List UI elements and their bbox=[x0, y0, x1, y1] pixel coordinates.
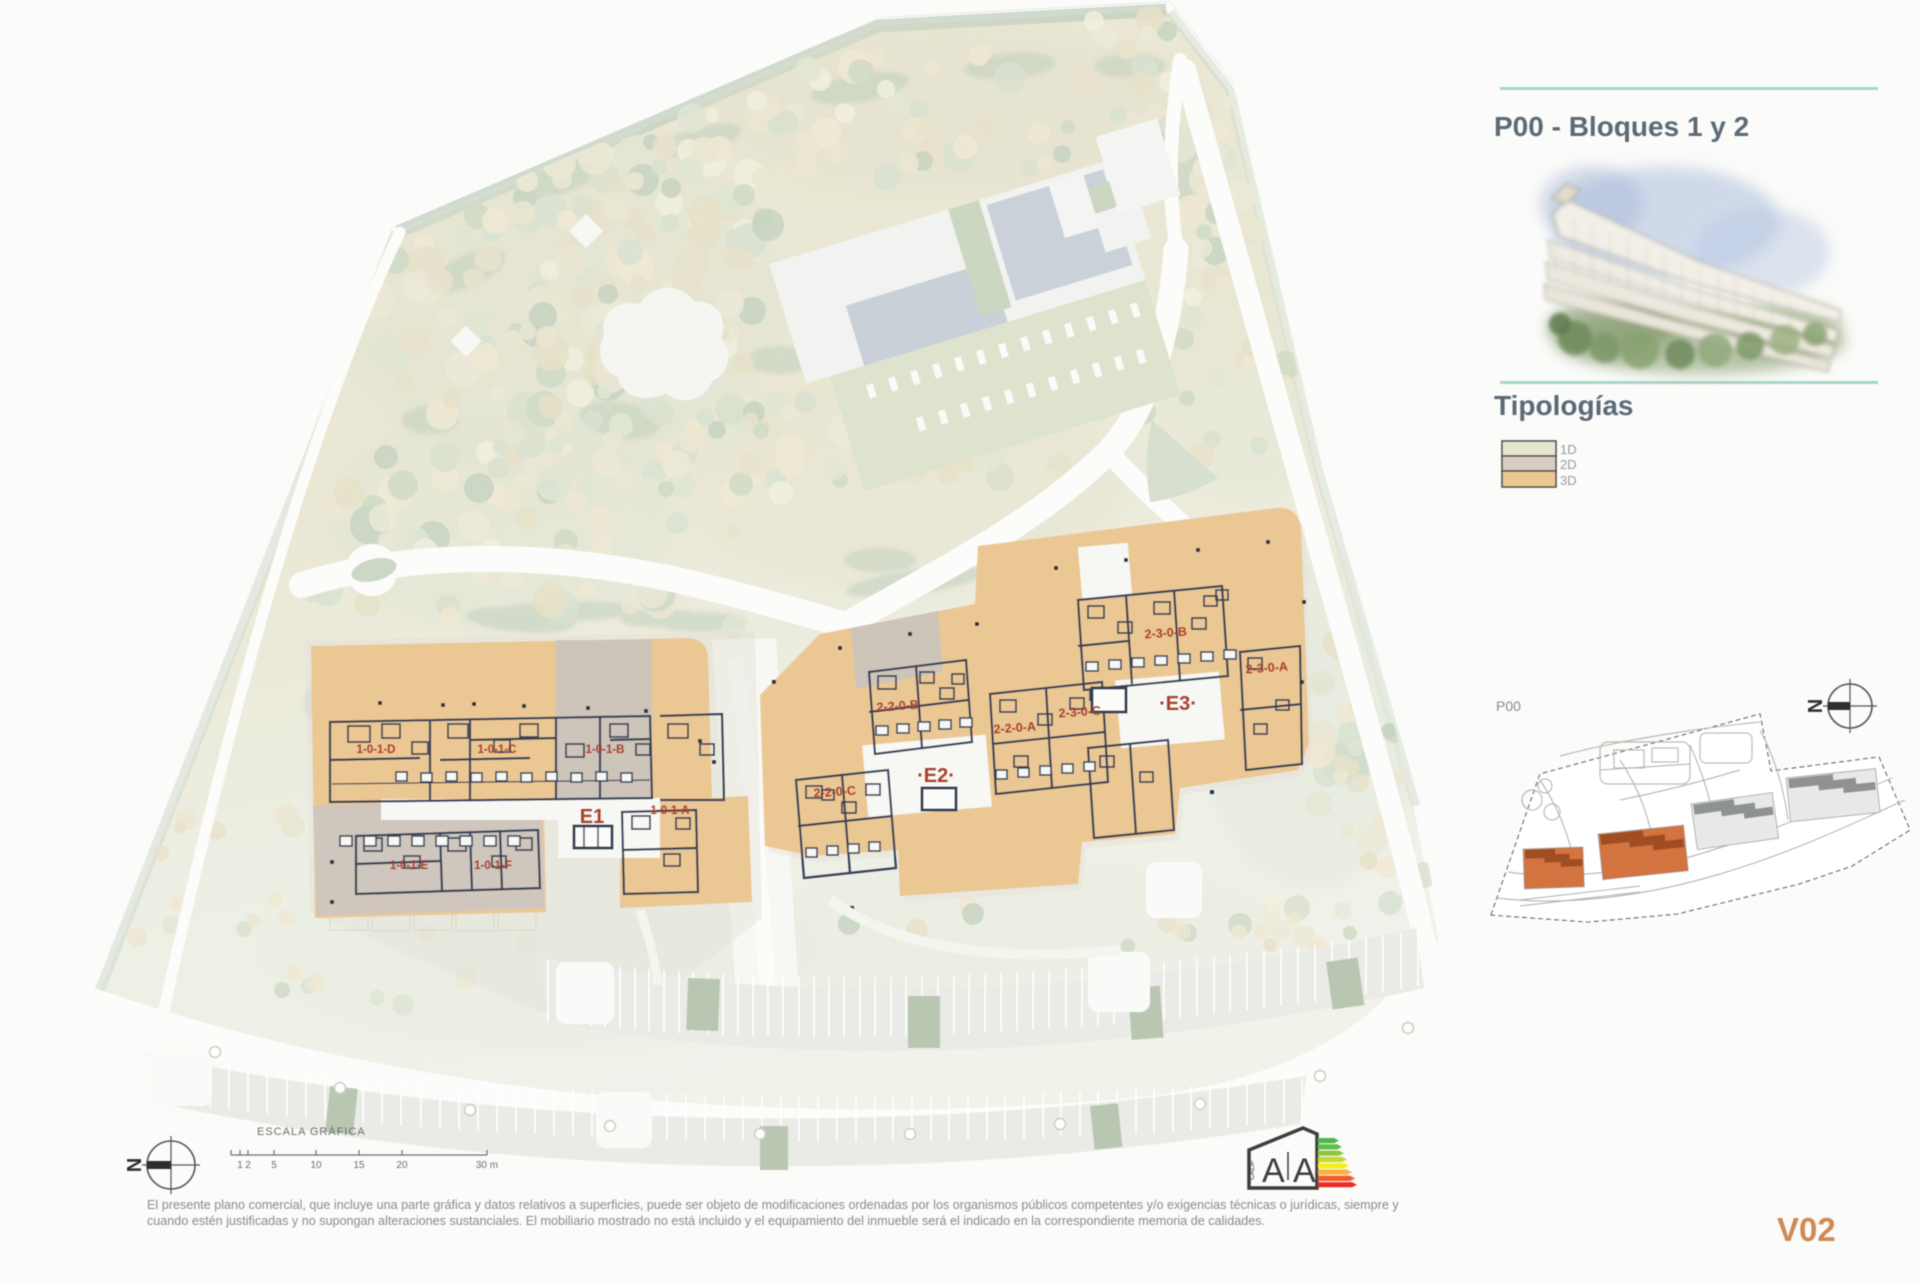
svg-text:A: A bbox=[1262, 1152, 1285, 1190]
svg-text:A: A bbox=[1293, 1152, 1316, 1190]
svg-text:1-0-1-E: 1-0-1-E bbox=[390, 860, 429, 872]
svg-text:2-3-0-B: 2-3-0-B bbox=[1144, 625, 1187, 642]
svg-text:ESCALA GRÁFICA: ESCALA GRÁFICA bbox=[257, 1125, 366, 1138]
svg-text:cuando estén justificadas y no: cuando estén justificadas y no supongan … bbox=[147, 1214, 1265, 1228]
svg-text:2: 2 bbox=[245, 1160, 251, 1171]
svg-text:2-2-0-C: 2-2-0-C bbox=[813, 784, 856, 801]
svg-text:Tipologías: Tipologías bbox=[1494, 390, 1634, 421]
svg-text:2-2-0-B: 2-2-0-B bbox=[876, 698, 919, 715]
svg-text:2-2-0-A: 2-2-0-A bbox=[993, 720, 1036, 737]
svg-text:1: 1 bbox=[237, 1160, 243, 1171]
svg-text:1-0-1-F: 1-0-1-F bbox=[474, 860, 512, 872]
svg-text:10: 10 bbox=[310, 1160, 322, 1171]
svg-text:P00 - Bloques 1 y 2: P00 - Bloques 1 y 2 bbox=[1494, 111, 1749, 142]
svg-text:3D: 3D bbox=[1560, 473, 1577, 488]
svg-text:2-3-0-C: 2-3-0-C bbox=[1058, 704, 1101, 721]
svg-text:20: 20 bbox=[396, 1160, 408, 1171]
svg-text:E1: E1 bbox=[580, 806, 604, 828]
svg-text:P00: P00 bbox=[1496, 698, 1521, 714]
svg-text:V02: V02 bbox=[1777, 1211, 1836, 1248]
svg-text:CALIF: CALIF bbox=[1249, 1160, 1256, 1180]
svg-text:·E3·: ·E3· bbox=[1159, 693, 1197, 715]
svg-text:N: N bbox=[124, 1158, 146, 1172]
svg-text:·E2·: ·E2· bbox=[917, 765, 955, 787]
svg-text:1D: 1D bbox=[1560, 442, 1577, 457]
svg-text:2D: 2D bbox=[1560, 457, 1577, 472]
svg-text:1-0-1-A: 1-0-1-A bbox=[651, 805, 690, 817]
svg-text:15: 15 bbox=[353, 1160, 365, 1171]
svg-text:5: 5 bbox=[271, 1160, 277, 1171]
svg-text:1-0-1-C: 1-0-1-C bbox=[478, 744, 517, 756]
svg-text:2-3-0-A: 2-3-0-A bbox=[1245, 660, 1288, 677]
svg-text:N: N bbox=[1805, 699, 1827, 713]
svg-text:1-0-1-D: 1-0-1-D bbox=[357, 744, 396, 756]
svg-text:30 m: 30 m bbox=[476, 1160, 498, 1171]
svg-text:1-0-1-B: 1-0-1-B bbox=[586, 744, 625, 756]
svg-text:El presente plano comercial, q: El presente plano comercial, que incluye… bbox=[147, 1198, 1399, 1212]
